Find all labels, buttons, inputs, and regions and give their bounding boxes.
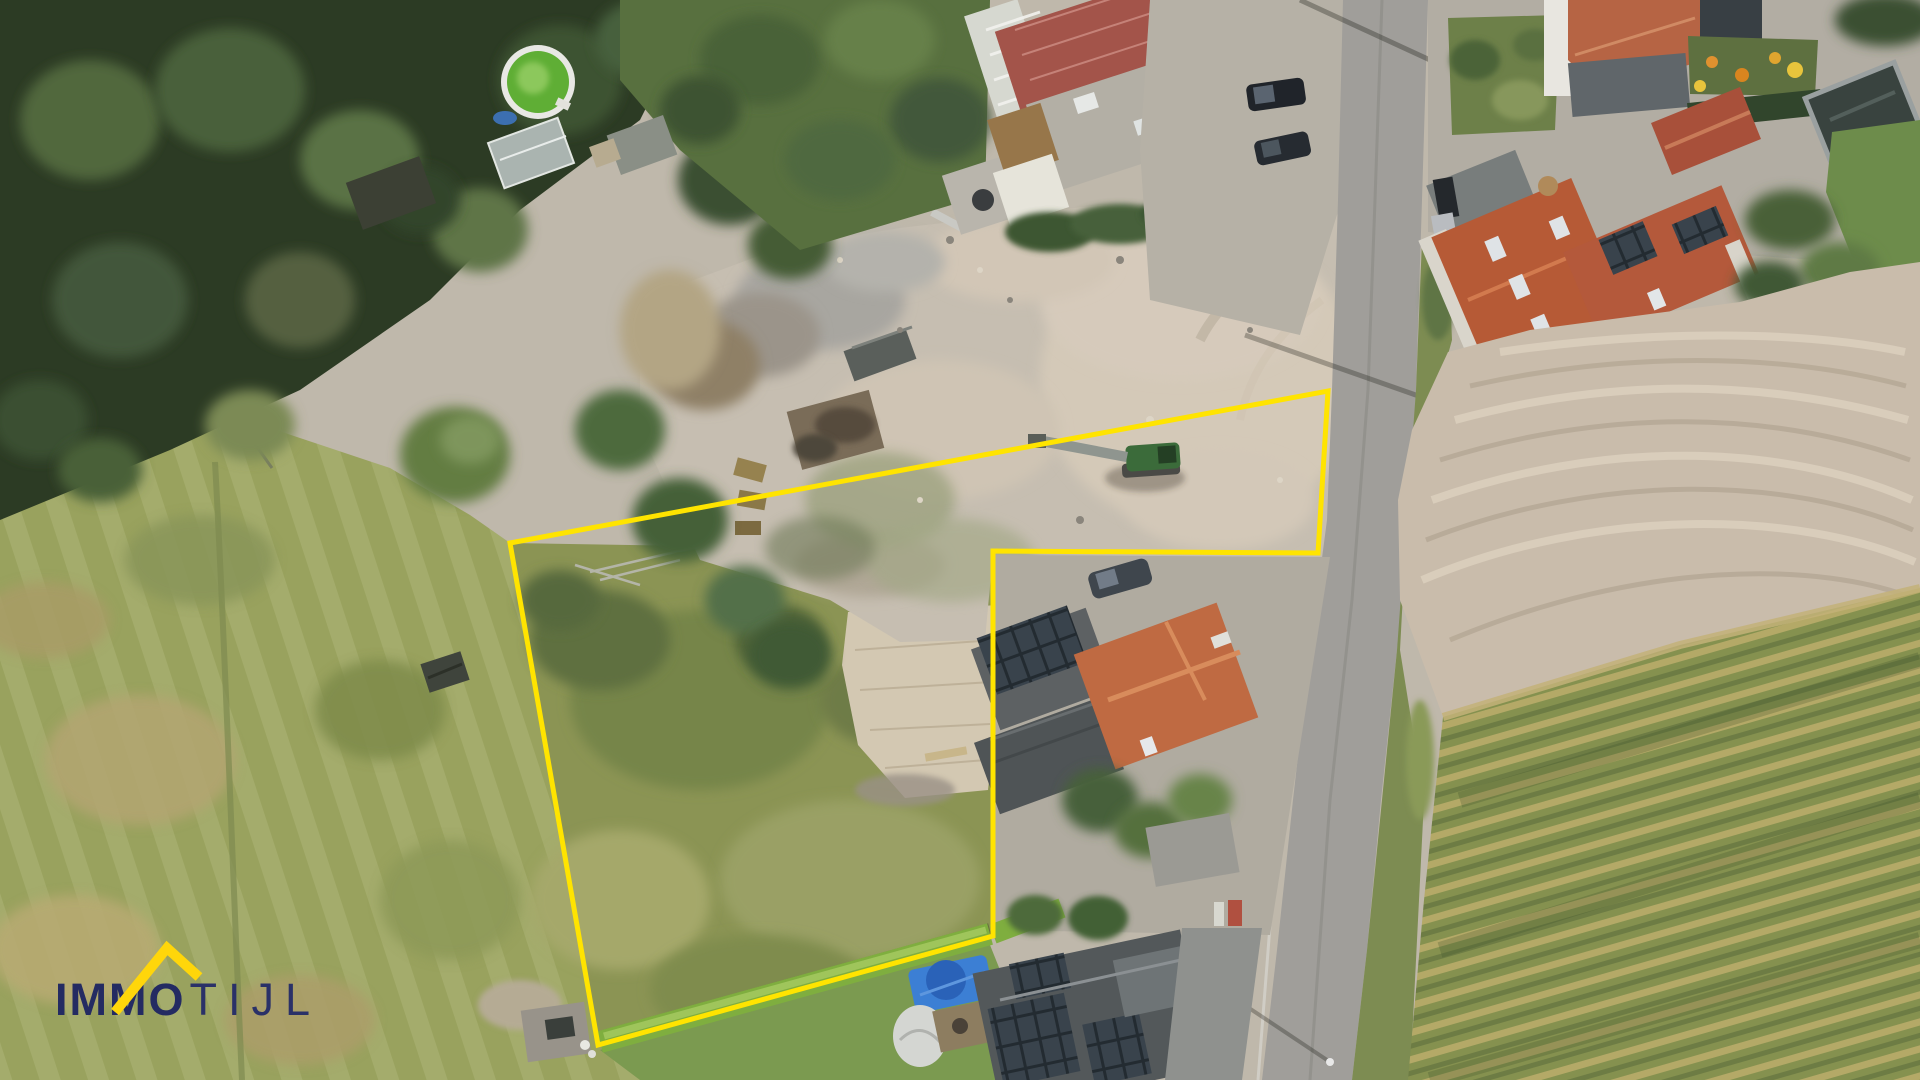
deck-table [952, 1018, 968, 1034]
patio-table [972, 189, 994, 211]
excavator-cab [1157, 445, 1176, 463]
satellite-dish [1538, 176, 1558, 196]
aerial-photo-screenshot: IMMOTIJL [0, 0, 1920, 1080]
parking-apron [1140, 0, 1345, 335]
front-garden [1448, 15, 1560, 135]
aerial-scene [0, 0, 1920, 1080]
gate-post [1214, 902, 1224, 926]
gate-post [1228, 900, 1242, 926]
utility-pole [1326, 1058, 1334, 1066]
flat-roof-extension [1568, 53, 1690, 117]
middle-houses [971, 555, 1330, 935]
flower-garden [1688, 36, 1818, 96]
blue-tarp-small [493, 111, 517, 125]
